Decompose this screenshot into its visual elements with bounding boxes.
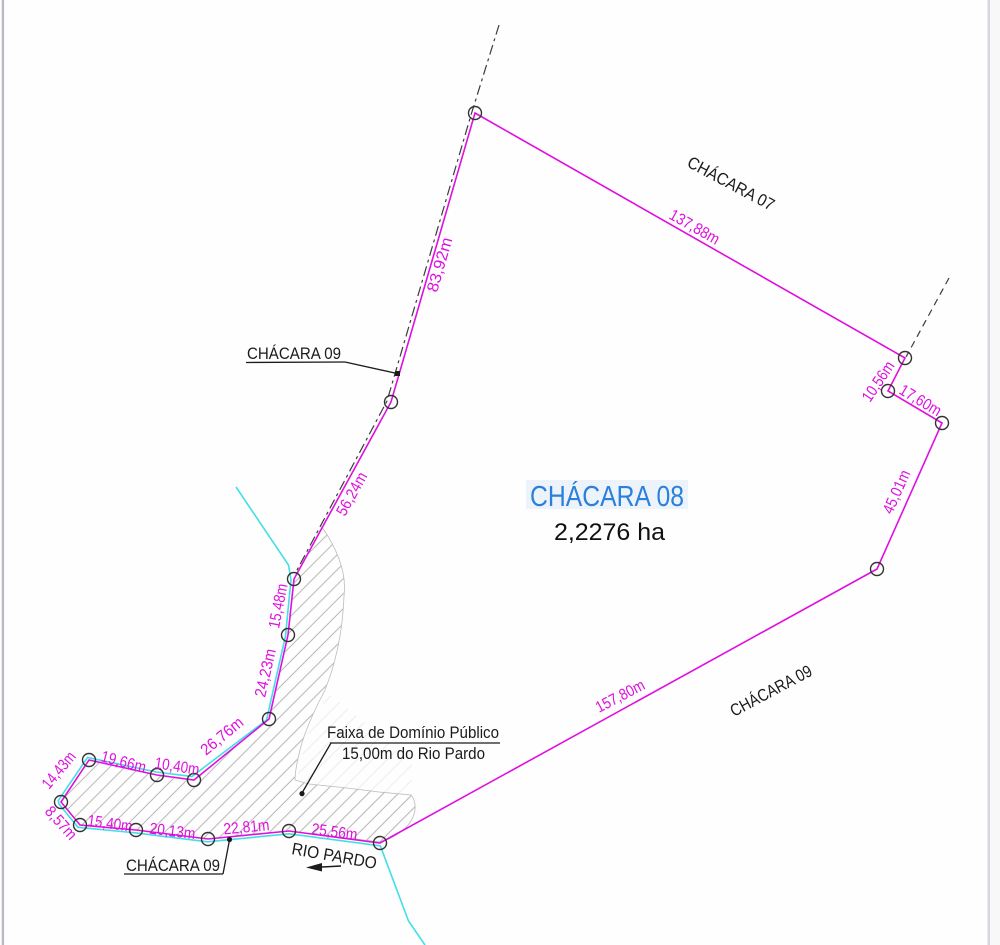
svg-text:CHÁCARA 09: CHÁCARA 09: [126, 856, 220, 875]
svg-text:15,00m do Rio Pardo: 15,00m do Rio Pardo: [342, 744, 485, 763]
svg-text:CHÁCARA 09: CHÁCARA 09: [247, 344, 341, 363]
svg-text:Faixa de Domínio Público: Faixa de Domínio Público: [327, 723, 499, 742]
svg-text:2,2276 ha: 2,2276 ha: [554, 519, 665, 546]
svg-text:CHÁCARA 08: CHÁCARA 08: [530, 480, 684, 513]
